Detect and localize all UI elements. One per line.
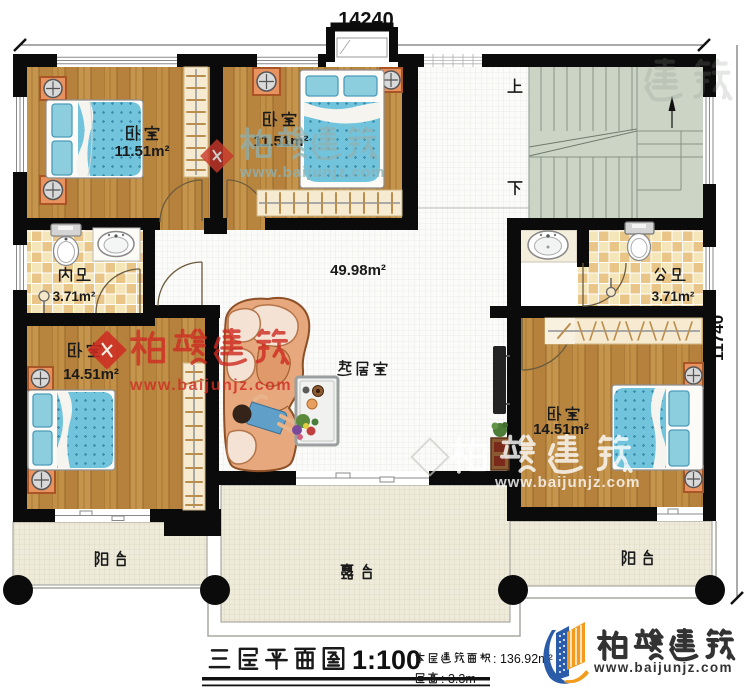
- svg-text:3.71m²: 3.71m²: [53, 289, 96, 304]
- svg-text:49.98m²: 49.98m²: [330, 262, 386, 279]
- svg-text:14.51m²: 14.51m²: [533, 421, 589, 438]
- svg-text:www.baijunjz.com: www.baijunjz.com: [129, 377, 292, 394]
- svg-text:www.baijunjz.com: www.baijunjz.com: [593, 660, 733, 675]
- svg-text:www.baijunjz.com: www.baijunjz.com: [239, 164, 385, 181]
- svg-text:3.71m²: 3.71m²: [652, 289, 695, 304]
- svg-text:: 3.3m: : 3.3m: [441, 672, 476, 686]
- svg-text:11.51m²: 11.51m²: [114, 143, 169, 160]
- svg-text:14.51m²: 14.51m²: [63, 366, 119, 383]
- svg-text:www.baijunjz.com: www.baijunjz.com: [494, 474, 640, 491]
- svg-text:1:100: 1:100: [352, 645, 421, 675]
